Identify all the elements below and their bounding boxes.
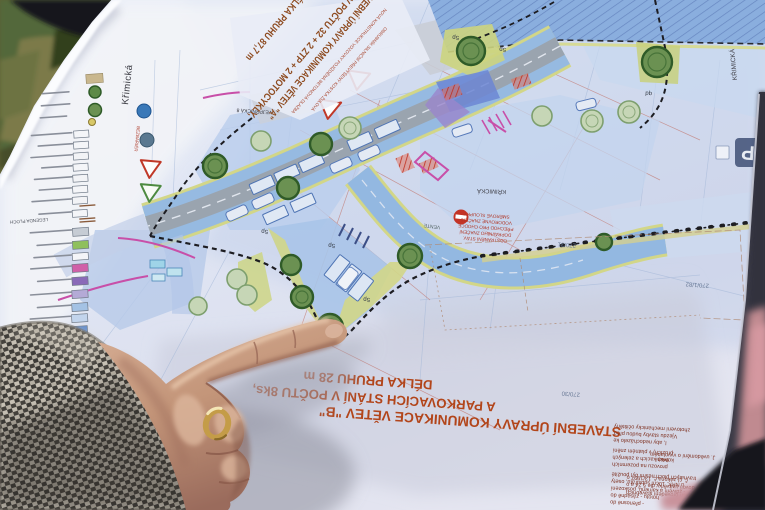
svg-text:5p: 5p [363, 295, 371, 301]
svg-text:94k): 94k) [658, 456, 669, 463]
svg-text:5p: 5p [328, 241, 336, 247]
svg-text:P: P [741, 141, 756, 164]
svg-text:5p: 5p [499, 45, 507, 51]
svg-text:5p: 5p [452, 33, 460, 39]
svg-text:qd: qd [645, 90, 652, 96]
svg-text:5p: 5p [261, 227, 269, 233]
